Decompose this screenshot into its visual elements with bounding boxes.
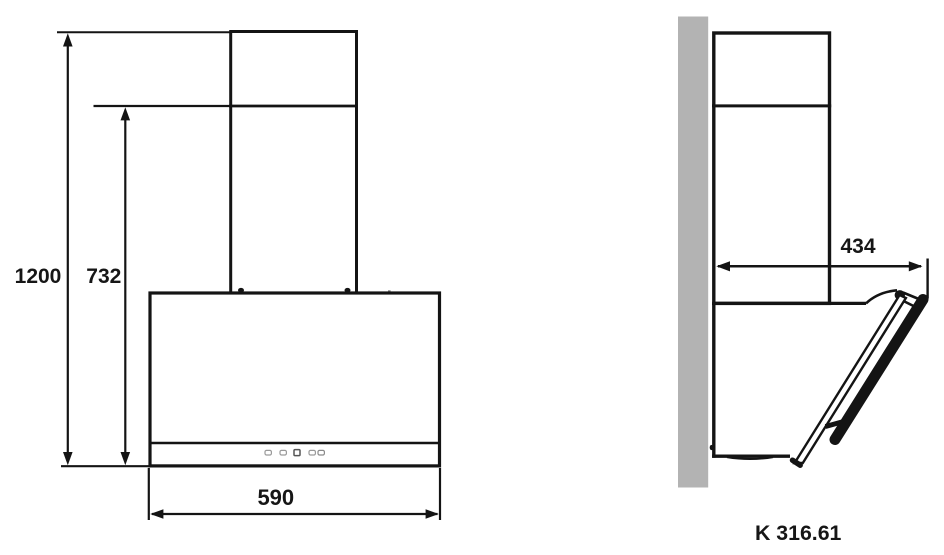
svg-text:434: 434	[840, 235, 875, 258]
svg-text:590: 590	[257, 485, 294, 510]
svg-text:K 316.61: K 316.61	[755, 521, 842, 545]
svg-text:1200: 1200	[15, 265, 62, 288]
svg-text:732: 732	[86, 265, 121, 288]
